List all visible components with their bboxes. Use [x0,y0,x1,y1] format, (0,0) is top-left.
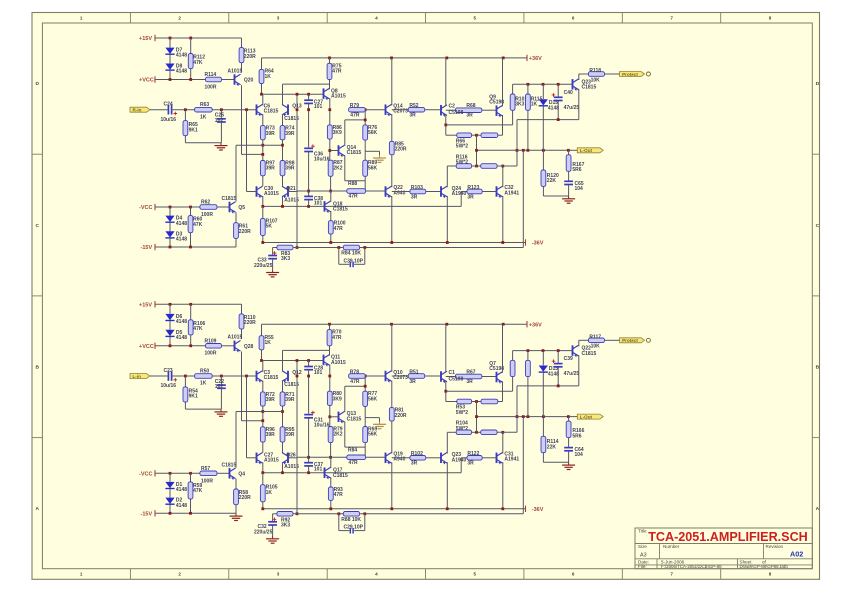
svg-text:C1: C1 [449,370,456,376]
svg-text:39R: 39R [285,131,295,137]
svg-text:R67: R67 [466,369,475,375]
svg-text:3R: 3R [467,461,474,467]
svg-text:2K2: 2K2 [333,432,342,438]
svg-text:1: 1 [80,572,83,577]
svg-text:R117: R117 [589,334,601,340]
svg-text:C: C [816,223,820,229]
svg-text:C24: C24 [164,102,173,108]
svg-text:-15V: -15V [141,245,153,251]
svg-text:56K: 56K [368,396,378,402]
svg-text:C23: C23 [164,368,173,374]
svg-text:A1015: A1015 [228,68,243,74]
svg-text:C29 10P: C29 10P [344,525,364,531]
svg-text:R51: R51 [409,369,418,375]
svg-text:R123: R123 [467,185,479,191]
svg-text:1K: 1K [265,340,272,346]
svg-text:56K: 56K [368,130,378,136]
svg-text:3R: 3R [411,194,418,200]
svg-text:10u/16: 10u/16 [314,423,330,429]
svg-text:4148: 4148 [176,69,187,75]
svg-text:R57: R57 [201,466,210,472]
svg-text:39R: 39R [266,166,276,172]
svg-text:5W*2: 5W*2 [456,144,468,150]
svg-text:R78: R78 [350,369,359,375]
svg-text:L-Out: L-Out [580,415,593,420]
svg-text:3K3: 3K3 [515,102,524,108]
svg-text:C2: C2 [449,104,456,110]
svg-text:4: 4 [375,15,378,20]
svg-text:47R: 47R [349,460,359,466]
svg-text:C1815: C1815 [222,196,237,202]
svg-text:39R: 39R [266,131,276,137]
svg-text:101: 101 [314,467,323,473]
svg-text:4148: 4148 [176,335,187,341]
svg-text:R114: R114 [205,72,217,78]
svg-text:47R: 47R [334,492,344,498]
svg-text:220R: 220R [239,495,251,501]
svg-text:B: B [35,364,39,370]
svg-text:R62: R62 [201,200,210,206]
svg-text:TCA-2051.AMPLIFIER.SCH: TCA-2051.AMPLIFIER.SCH [648,530,808,544]
svg-text:R118: R118 [589,68,601,74]
svg-text:3R: 3R [409,379,416,385]
svg-text:220R: 220R [395,413,407,419]
svg-text:39R: 39R [285,397,295,403]
svg-text:R50: R50 [200,369,209,375]
svg-text:100R: 100R [201,212,213,218]
svg-text:47u/25: 47u/25 [564,371,580,377]
svg-text:22K: 22K [547,444,557,450]
svg-text:4148: 4148 [176,237,187,243]
svg-text:3K3: 3K3 [281,523,290,529]
svg-text:10K: 10K [591,77,601,83]
svg-text:C1815: C1815 [333,473,348,479]
svg-text:3K3: 3K3 [281,256,290,262]
svg-text:R103: R103 [411,185,423,191]
svg-text:A1015: A1015 [264,191,279,197]
svg-text:Number: Number [663,544,680,549]
svg-text:4148: 4148 [176,221,187,227]
svg-text:A02: A02 [790,550,803,559]
svg-text:101: 101 [314,370,323,376]
svg-text:9K1: 9K1 [189,127,198,133]
svg-text:220R: 220R [244,320,256,326]
svg-text:10K: 10K [591,344,601,350]
svg-text:47K: 47K [193,60,203,66]
svg-text:2K2: 2K2 [333,165,342,171]
svg-text:C1815: C1815 [333,207,348,213]
svg-text:C1815: C1815 [264,375,279,381]
svg-text:4148: 4148 [176,319,187,325]
svg-text:Protect: Protect [622,338,638,343]
svg-text:39R: 39R [285,432,295,438]
svg-text:Q4: Q4 [238,472,245,478]
svg-text:Protect: Protect [622,72,638,77]
svg-text:47R: 47R [350,113,360,119]
svg-text:39R: 39R [285,166,295,172]
svg-text:4148: 4148 [176,503,187,509]
svg-text:R88 10K: R88 10K [341,517,361,523]
svg-text:10u/16: 10u/16 [314,156,330,162]
svg-text:39R: 39R [266,432,276,438]
svg-text:C39: C39 [564,356,573,362]
svg-text:5R6: 5R6 [572,433,581,439]
svg-text:A1015: A1015 [228,335,243,341]
svg-text:A1941: A1941 [504,457,519,463]
svg-text:R84 10K: R84 10K [341,251,361,257]
svg-text:4148: 4148 [548,105,559,111]
svg-text:Q5: Q5 [238,205,245,211]
svg-text:File:: File: [638,564,647,569]
svg-text:3: 3 [277,15,280,20]
svg-text:+VCC: +VCC [139,78,154,84]
svg-text:-VCC: -VCC [139,205,152,211]
svg-text:220R: 220R [395,147,407,153]
svg-text:A1015: A1015 [331,94,346,100]
svg-text:1K: 1K [531,102,538,108]
svg-text:R63: R63 [200,102,209,108]
svg-text:8: 8 [769,572,772,577]
svg-text:47u/25: 47u/25 [564,105,580,111]
svg-text:5: 5 [474,572,477,577]
svg-text:104: 104 [575,452,584,458]
svg-text:C1815: C1815 [582,85,597,91]
svg-text:100R: 100R [205,351,217,357]
svg-text:3R: 3R [467,194,474,200]
svg-text:1: 1 [80,15,83,20]
svg-text:C1815: C1815 [347,416,362,422]
svg-text:104: 104 [575,186,584,192]
svg-text:56K: 56K [368,165,378,171]
svg-text:C1815: C1815 [222,463,237,469]
svg-text:47R: 47R [332,335,342,341]
svg-text:6: 6 [572,572,575,577]
svg-text:A1015: A1015 [264,458,279,464]
svg-text:4: 4 [375,572,378,577]
svg-text:A: A [35,506,39,512]
svg-text:3K9: 3K9 [333,396,342,402]
svg-text:R-in: R-in [133,108,142,113]
svg-text:Title: Title [638,529,647,534]
svg-text:R84: R84 [348,447,357,453]
svg-text:R102: R102 [411,451,423,457]
svg-text:Drawn\GP-88\GP88.Ddb: Drawn\GP-88\GP88.Ddb [740,564,789,569]
svg-text:A1015: A1015 [331,360,346,366]
svg-text:Size: Size [638,544,647,549]
svg-text:C1815: C1815 [347,150,362,156]
svg-text:7: 7 [670,572,673,577]
svg-text:D: D [816,81,820,87]
svg-text:+36V: +36V [529,322,542,328]
svg-text:8: 8 [769,15,772,20]
svg-text:39R: 39R [266,397,276,403]
svg-text:220u/25: 220u/25 [254,530,273,536]
svg-text:10u/16: 10u/16 [161,383,177,389]
svg-text:101: 101 [314,200,323,206]
svg-text:47R: 47R [334,226,344,232]
svg-text:102: 102 [215,384,224,390]
svg-text:C5198: C5198 [449,110,464,116]
svg-text:47K: 47K [193,488,203,494]
svg-text:3R: 3R [409,113,416,119]
svg-text:R122: R122 [467,451,479,457]
svg-text:1K: 1K [200,381,207,387]
svg-text:4148: 4148 [176,53,187,59]
svg-text:1K: 1K [200,114,207,120]
svg-text:3R: 3R [466,113,473,119]
svg-text:2: 2 [178,15,181,20]
svg-text:Q20: Q20 [244,78,254,84]
svg-text:100R: 100R [201,478,213,484]
svg-text:5W*2: 5W*2 [456,410,468,416]
svg-text:-15V: -15V [141,512,153,518]
svg-text:C1815: C1815 [264,109,279,115]
svg-text:+VCC: +VCC [139,344,154,350]
svg-text:R79: R79 [350,103,359,109]
svg-text:3: 3 [277,572,280,577]
svg-text:A3: A3 [640,552,647,558]
svg-text:A: A [816,506,820,512]
svg-text:56K: 56K [368,432,378,438]
svg-text:47K: 47K [193,222,203,228]
svg-text:L-Out: L-Out [580,148,593,153]
svg-text:10u/16: 10u/16 [161,117,177,123]
svg-text:C: C [35,223,39,229]
svg-text:C5198: C5198 [449,376,464,382]
svg-text:220R: 220R [239,229,251,235]
svg-text:3K9: 3K9 [333,130,342,136]
svg-text:1K: 1K [266,490,273,496]
svg-text:22K: 22K [547,178,557,184]
svg-text:47K: 47K [193,326,203,332]
svg-text:5K: 5K [266,224,273,230]
svg-text:100R: 100R [205,84,217,90]
svg-text:Revision: Revision [766,544,784,549]
svg-text:2: 2 [178,572,181,577]
svg-text:R68: R68 [466,103,475,109]
svg-text:7: 7 [670,15,673,20]
svg-text:4148: 4148 [548,372,559,378]
svg-text:+15V: +15V [139,36,152,42]
svg-text:+36V: +36V [529,56,542,62]
svg-text:L-in: L-in [133,374,142,379]
svg-text:5W*2: 5W*2 [456,160,468,166]
svg-text:4148: 4148 [176,487,187,493]
svg-text:R52: R52 [409,103,418,109]
svg-text:5R6: 5R6 [572,167,581,173]
svg-text:3R: 3R [466,379,473,385]
svg-text:+15V: +15V [139,303,152,309]
svg-text:5W*2: 5W*2 [456,426,468,432]
svg-text:5: 5 [474,15,477,20]
svg-text:R109: R109 [205,338,217,344]
svg-text:-36V: -36V [532,241,544,247]
svg-text:B: B [816,364,820,370]
svg-text:C39 10P: C39 10P [344,258,364,264]
svg-text:102: 102 [215,118,224,124]
svg-text:R88: R88 [348,181,357,187]
svg-text:1K: 1K [265,74,272,80]
svg-text:C1815: C1815 [582,351,597,357]
svg-text:47R: 47R [350,379,360,385]
svg-text:A1941: A1941 [504,190,519,196]
svg-text:6: 6 [572,15,575,20]
svg-text:220u/25: 220u/25 [254,263,273,269]
svg-text:C40: C40 [564,90,573,96]
svg-text:3R: 3R [411,461,418,467]
svg-text:F:\2006\TCA-2051\DCB\GP-88: F:\2006\TCA-2051\DCB\GP-88 [661,564,722,569]
svg-text:47R: 47R [349,194,359,200]
svg-text:101: 101 [314,104,323,110]
svg-text:-36V: -36V [532,507,544,513]
svg-text:D: D [35,81,39,87]
svg-text:-VCC: -VCC [139,472,152,478]
svg-text:9K1: 9K1 [189,394,198,400]
svg-text:220R: 220R [244,54,256,60]
svg-text:47R: 47R [332,69,342,75]
svg-text:Q28: Q28 [244,344,254,350]
